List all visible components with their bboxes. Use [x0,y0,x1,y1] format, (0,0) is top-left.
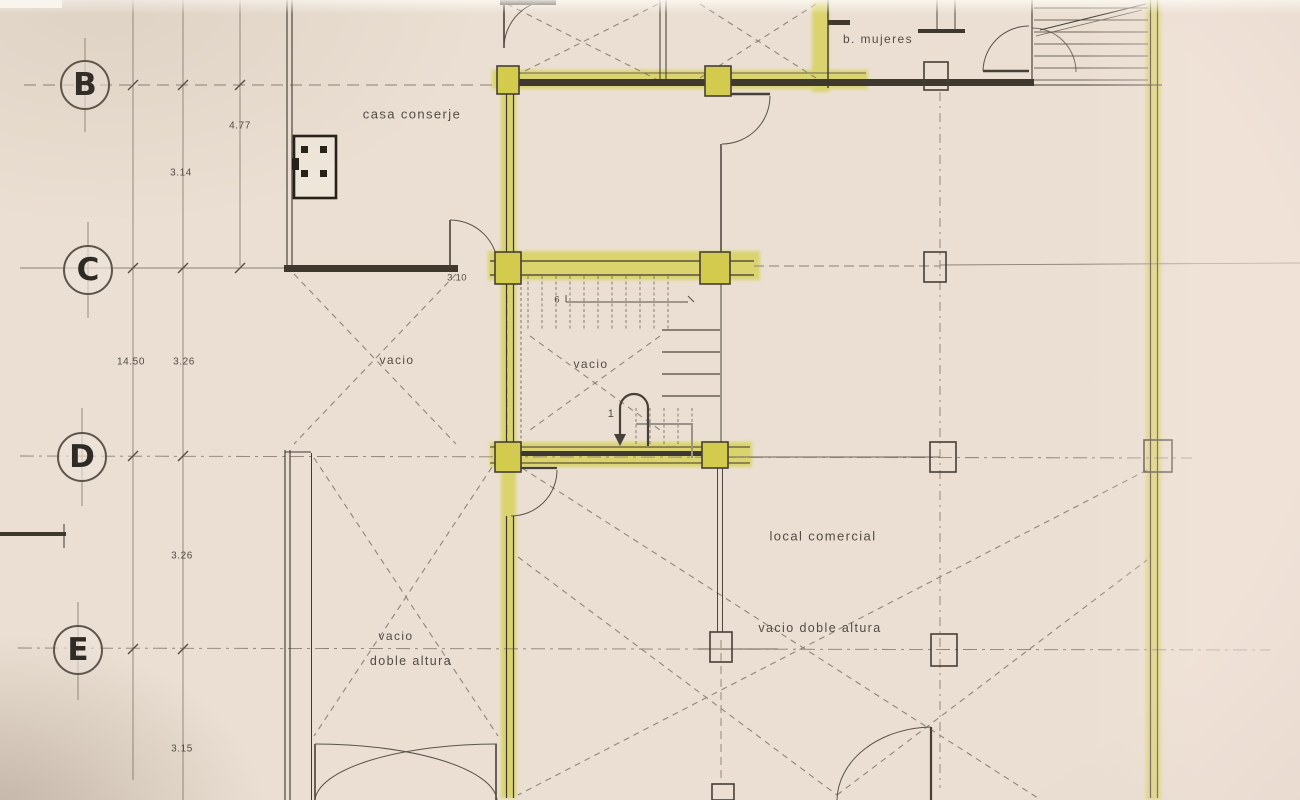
walls [0,0,1162,800]
room-label-local-comercial: local comercial [770,529,877,544]
dimension-1450: 14.50 [117,357,145,368]
stair-step-top-label: 6 [554,295,560,306]
grid-lines [18,0,1300,800]
dimension-326b: 3.26 [171,551,193,562]
dimension-477: 4.77 [229,121,251,132]
dimension-310: 3.10 [447,273,467,284]
wall-fixture [292,136,336,198]
grid-bubble-e: E [53,625,103,675]
room-label-casa-conserje: casa conserje [363,107,461,122]
room-label-doble-altura-left-lower: doble altura [370,654,452,668]
void-diagonals [294,4,1147,800]
columns [495,62,1172,800]
room-label-vacio-left-lower: vacio [378,629,413,643]
paper-edge-chip [0,0,62,8]
room-label-vacio-doble-altura: vacio doble altura [758,621,881,635]
room-label-vacio-left: vacio [379,353,414,367]
dimension-315: 3.15 [171,744,193,755]
highlighted-walls [488,0,1161,800]
floor-plan-drawing [0,0,1300,800]
grid-bubble-d: D [57,432,107,482]
upper-right-staircase [1034,4,1148,80]
grid-bubble-c: C [63,245,113,295]
room-label-vacio-stair: vacio [573,357,608,371]
room-label-bano-mujeres: b. mujeres [843,32,913,46]
dimension-326a: 3.26 [173,357,195,368]
grid-bubble-b: B [60,60,110,110]
floor-plan-scan: B C D E casa conserje b. mujeres vacio v… [0,0,1300,800]
main-staircase [521,276,720,458]
stair-step-bottom-label: 1 [608,408,614,420]
dimension-314: 3.14 [170,168,192,179]
